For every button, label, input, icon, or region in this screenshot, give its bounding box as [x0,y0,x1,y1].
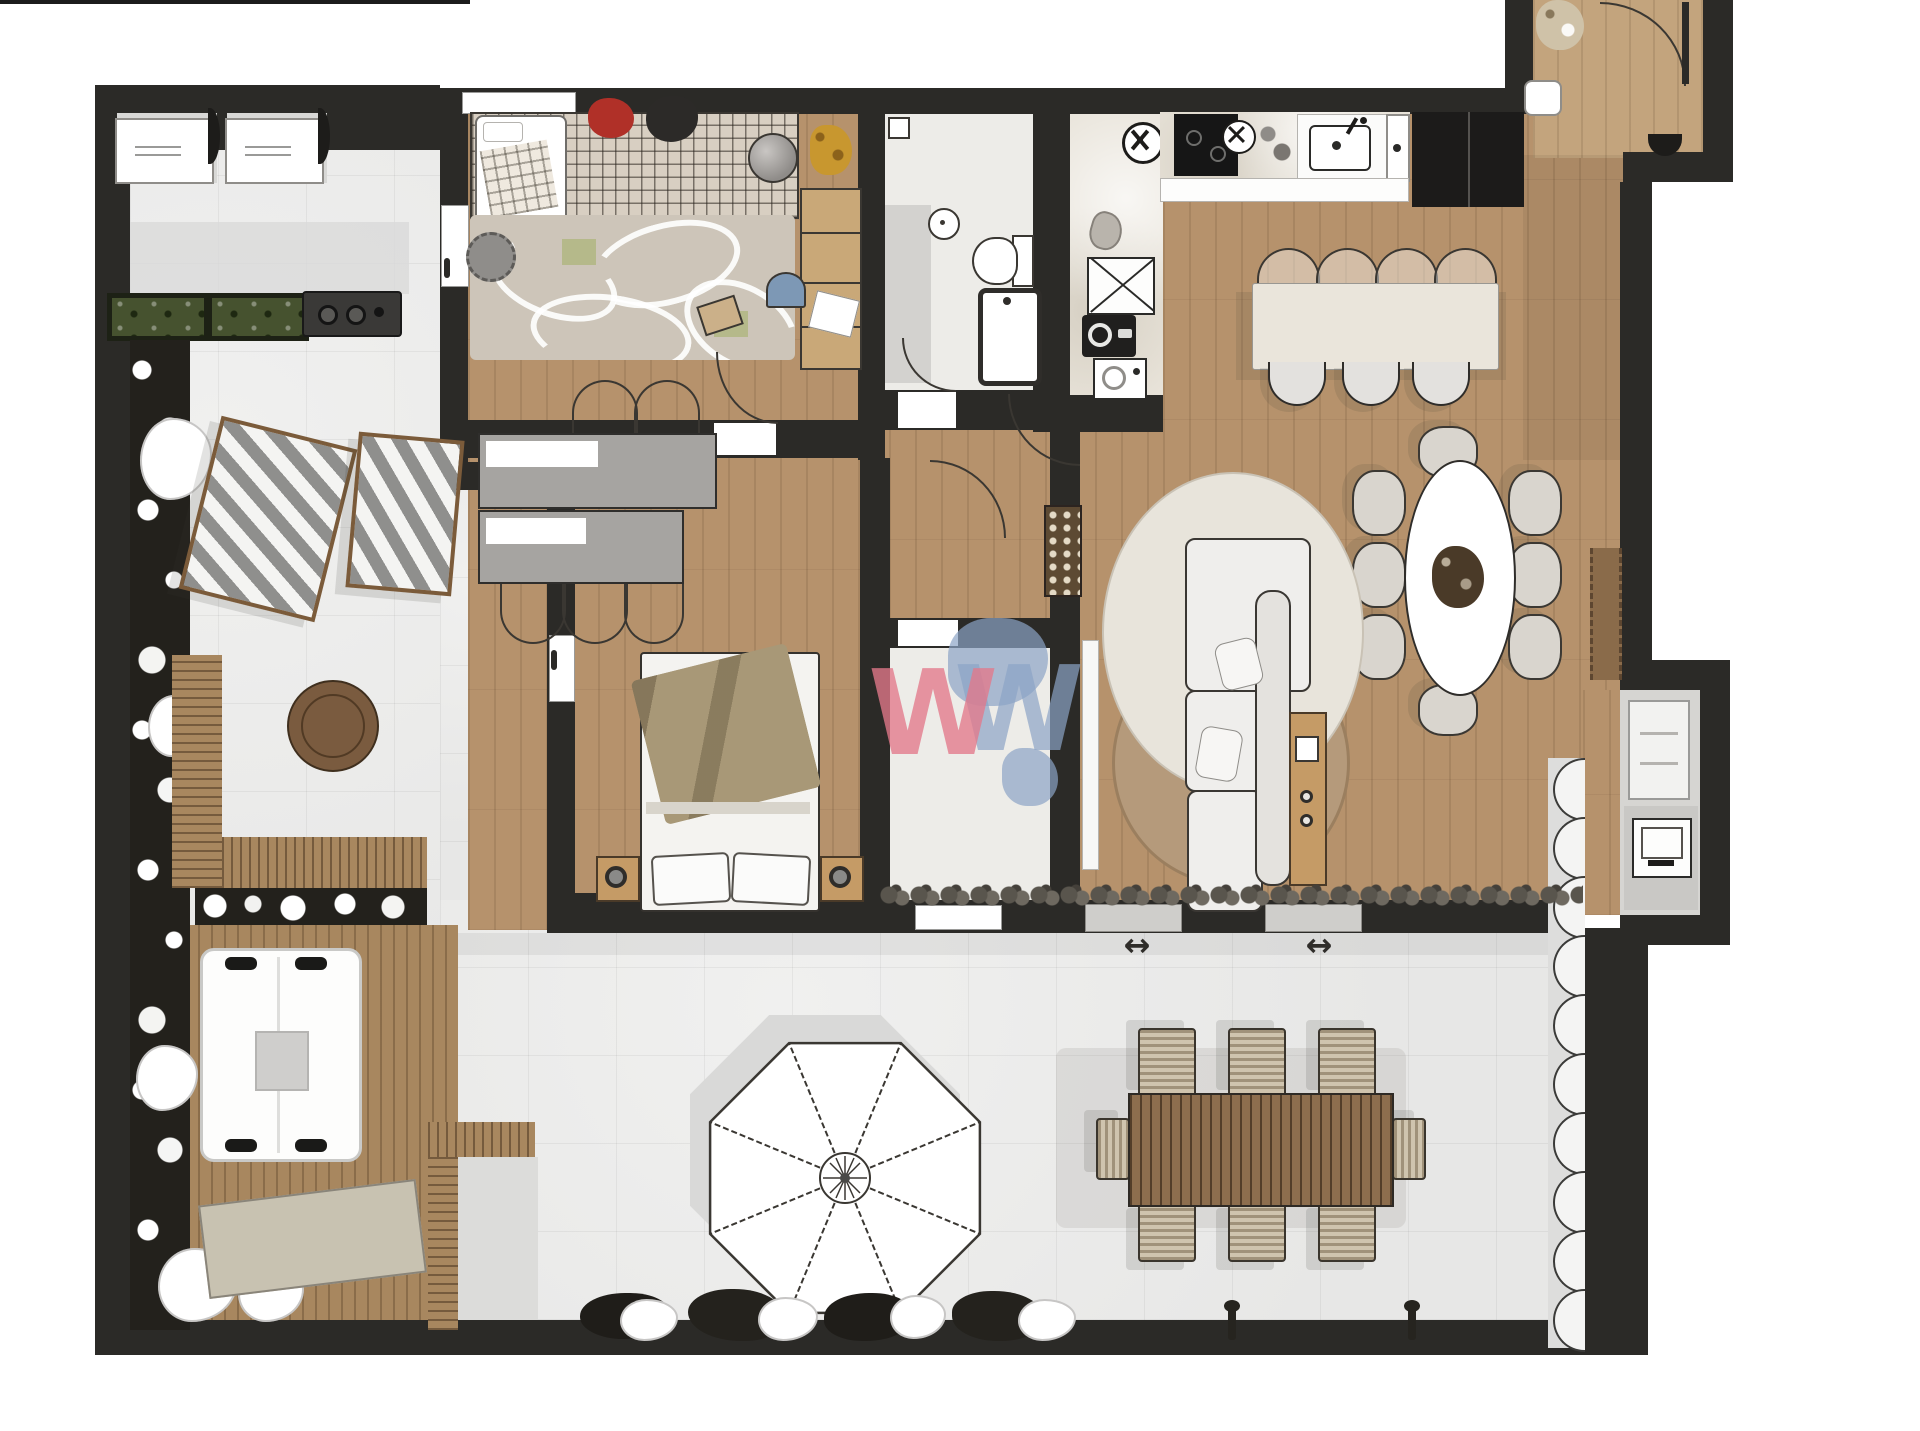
fan-hub [1137,137,1143,143]
outdoor-chair [1096,1118,1130,1180]
outdoor-chair [1138,1028,1196,1098]
hedge-planter [107,293,209,341]
outdoor-chair [1228,1200,1286,1262]
wall-right-mid [1620,182,1652,665]
shower-tray [1087,257,1155,315]
crib [475,115,567,231]
dishwasher-front [1386,114,1410,182]
flower-planter [195,888,427,925]
wall-bay-bottom [1620,915,1730,945]
stove-bay-niche [1583,690,1620,915]
garden-torch [1408,1308,1416,1340]
wood-stove [1632,818,1692,878]
outdoor-chair [1318,1028,1376,1098]
vent-circle-icon [1222,120,1256,154]
table-lamp [1295,736,1319,762]
deck-path [458,1157,538,1330]
burner-knob-icon [346,305,366,325]
outdoor-chair [1138,1200,1196,1262]
dining-chair [1508,470,1562,536]
wardrobe-panel [486,441,598,467]
pebble-strip [880,882,1583,910]
wall-entry-step [1623,152,1733,182]
garden-torch-head [1404,1300,1420,1312]
shrub-flower [620,1299,678,1341]
double-bed [640,652,820,912]
hot-tub-console [255,1031,309,1091]
wall-nursery-bath [858,114,885,460]
terrace-door-handle [444,258,450,278]
garden-torch-head [1224,1300,1240,1312]
terrace-bench [172,655,222,888]
rug-green-patch [562,239,596,265]
burner-knob-icon [374,307,384,317]
headrest [295,957,327,970]
outdoor-chair [1228,1028,1286,1098]
kids-chair [766,272,806,308]
sink-counter [1297,114,1387,180]
counter-front-strip [1160,178,1409,202]
wall-interior-left-upper [440,114,468,462]
terrace-bottom-floor [440,900,1583,1320]
drain-dot [940,220,945,225]
bathtub [978,288,1042,386]
corridor-shading [1523,155,1623,460]
toilet-bowl [972,237,1018,285]
page-rule-line [0,0,470,4]
round-coffee-table [287,680,379,772]
wall-left [95,85,130,1355]
entry-bench [1524,80,1562,116]
bed-fold [646,802,810,814]
garden-torch [1228,1308,1236,1340]
tub-faucet-icon [1003,297,1011,305]
sun-lounger [225,118,324,184]
wall-bay-right [1700,660,1730,945]
faucet-dot [1360,117,1367,124]
stove-inner-line [1641,827,1683,859]
dining-chair [1352,470,1406,536]
outdoor-chair [1392,1118,1426,1180]
terrace-bench [222,837,427,888]
dryer-knob [1133,368,1140,375]
shrub-flower [758,1297,818,1341]
burner-icon [1210,146,1226,162]
burner-knob-icon [318,305,338,325]
bed-blanket [630,643,821,825]
shelf-divider [802,282,860,284]
wardrobe [478,433,717,509]
washer-door-icon [1088,323,1112,347]
toy-red [588,98,634,138]
table-inner-ring [301,694,365,758]
washer-panel [1118,329,1132,338]
watermark-letter-pink: W [868,654,998,772]
outdoor-chair [1318,1200,1376,1262]
play-ball [748,133,798,183]
table-knob-icon [1300,814,1313,827]
bath-niche [888,117,910,139]
wine-rack [1044,505,1082,597]
wardrobe [478,510,684,584]
sofa-back [1255,590,1291,886]
lounger-line [245,146,291,148]
sofa-side-table [1289,712,1327,886]
bay-shelf [1628,700,1690,800]
dryer [1093,358,1147,400]
floor-pouf [466,232,516,282]
sink-round [928,208,960,240]
wall-right-bottom [1583,928,1648,1355]
headrest [225,1139,257,1152]
slide-arrow: ↔ [1112,930,1162,962]
entry-plant [1536,0,1584,50]
slide-arrow: ↔ [1294,930,1344,962]
shrub-planter-row [580,1285,1100,1345]
terrace-shadow [117,222,409,294]
bathroom-top-door-gap [898,392,956,428]
dryer-door-icon [1102,366,1126,390]
closet-curtain-arc [624,584,684,644]
deck-bench [428,1122,535,1157]
bedroom-terrace-door-handle [551,650,557,670]
shrub-flower [890,1295,946,1339]
lounger-line [245,154,291,156]
table-knob-icon [1300,790,1313,803]
nursery-shelf [800,188,862,370]
sofa-cushion [1194,725,1244,784]
washing-machine [1082,315,1136,357]
deck-chair [345,432,464,597]
bed-pillow [651,852,732,906]
table-centerpiece [1432,546,1484,608]
headrest [295,1139,327,1152]
hot-tub [200,948,362,1162]
watermark: W W [860,598,1120,838]
shelf-divider [802,232,860,234]
dw-knob [1393,144,1401,152]
crib-pillow [483,122,523,142]
crib-blanket [480,140,559,219]
wardrobe-panel [486,518,586,544]
entry-door-leaf [1682,2,1689,84]
cabinet-gap [1468,112,1470,207]
nursery-window [462,92,576,114]
parasol-umbrella [695,1028,995,1328]
shrub-flower [1018,1299,1076,1341]
tall-cabinet-fridge [1412,112,1524,207]
counter-utensils [1258,122,1294,166]
sun-lounger [115,118,214,184]
nursery-rug [470,215,795,360]
dining-chair [1508,614,1562,680]
grill-counter [302,291,402,337]
drain-dot [1332,141,1341,150]
ventilation-unit-icon [1122,122,1164,164]
toy-giraffe [810,125,852,175]
bedside-lamp-icon [605,866,627,888]
wall-entry-left [1505,0,1533,92]
hedge-planter [207,293,309,341]
lounger-line [135,154,181,156]
bedside-lamp-icon [829,866,851,888]
shelf-line [1640,732,1678,735]
outdoor-dining-table [1128,1093,1394,1207]
kitchen-island [1252,283,1499,370]
fringe-runner [1590,548,1622,680]
floor-plan: ↔ ↔ [0,0,1920,1431]
stove-handle [1648,860,1674,866]
nursery-door-gap [714,423,776,455]
dining-table-oval [1404,460,1516,696]
dining-chair [1508,542,1562,608]
terrace-wall-shadow [440,933,1583,955]
burner-icon [1186,130,1202,146]
bed-pillow [731,852,812,906]
lounger-line [135,146,181,148]
headrest [225,957,257,970]
shelf-line [1640,762,1678,765]
